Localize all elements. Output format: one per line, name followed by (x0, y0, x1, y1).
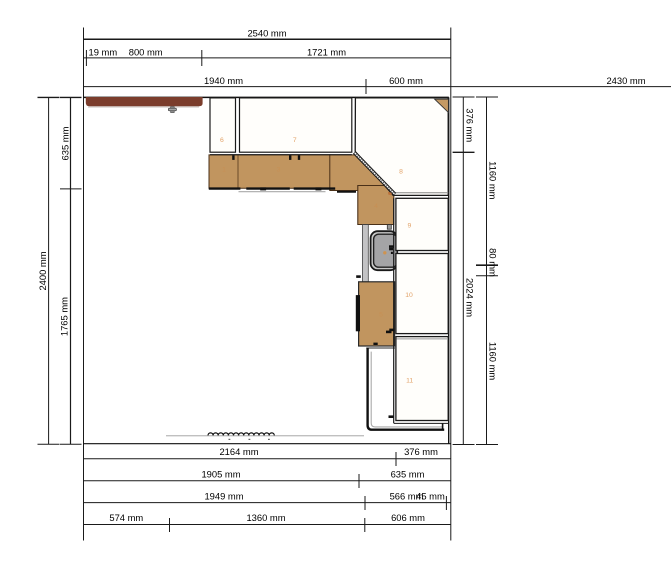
svg-text:1940 mm: 1940 mm (204, 75, 243, 86)
svg-text:1: 1 (222, 167, 226, 174)
svg-text:1905 mm: 1905 mm (201, 468, 240, 479)
svg-text:2024 mm: 2024 mm (465, 278, 476, 317)
svg-text:5: 5 (379, 312, 383, 319)
svg-text:3: 3 (277, 167, 281, 174)
svg-text:1949 mm: 1949 mm (204, 490, 243, 501)
svg-text:2430 mm: 2430 mm (606, 75, 645, 86)
svg-text:8: 8 (399, 168, 403, 175)
svg-text:80 mm: 80 mm (488, 248, 499, 277)
svg-text:4: 4 (374, 203, 378, 210)
svg-text:635 mm: 635 mm (391, 468, 425, 479)
svg-text:600 mm: 600 mm (389, 75, 423, 86)
svg-text:800 mm: 800 mm (129, 46, 163, 57)
svg-text:376 mm: 376 mm (404, 446, 438, 457)
svg-text:19 mm: 19 mm (89, 46, 118, 57)
svg-text:1160 mm: 1160 mm (488, 342, 499, 381)
svg-text:11: 11 (406, 377, 413, 384)
svg-text:574 mm: 574 mm (109, 512, 143, 523)
svg-text:376 mm: 376 mm (465, 108, 476, 142)
svg-text:2400 mm: 2400 mm (37, 251, 48, 290)
svg-text:606 mm: 606 mm (391, 512, 425, 523)
svg-text:1160 mm: 1160 mm (488, 161, 499, 200)
svg-text:45 mm: 45 mm (416, 490, 445, 501)
svg-text:2164 mm: 2164 mm (219, 446, 258, 457)
svg-text:6: 6 (220, 137, 224, 144)
svg-text:9: 9 (408, 222, 412, 229)
svg-text:1360 mm: 1360 mm (246, 512, 285, 523)
svg-text:1721 mm: 1721 mm (307, 46, 346, 57)
svg-text:10: 10 (405, 292, 413, 299)
svg-text:635 mm: 635 mm (59, 126, 70, 160)
svg-text:7: 7 (293, 137, 297, 144)
svg-text:1765 mm: 1765 mm (58, 297, 69, 336)
svg-text:2540 mm: 2540 mm (247, 28, 286, 39)
